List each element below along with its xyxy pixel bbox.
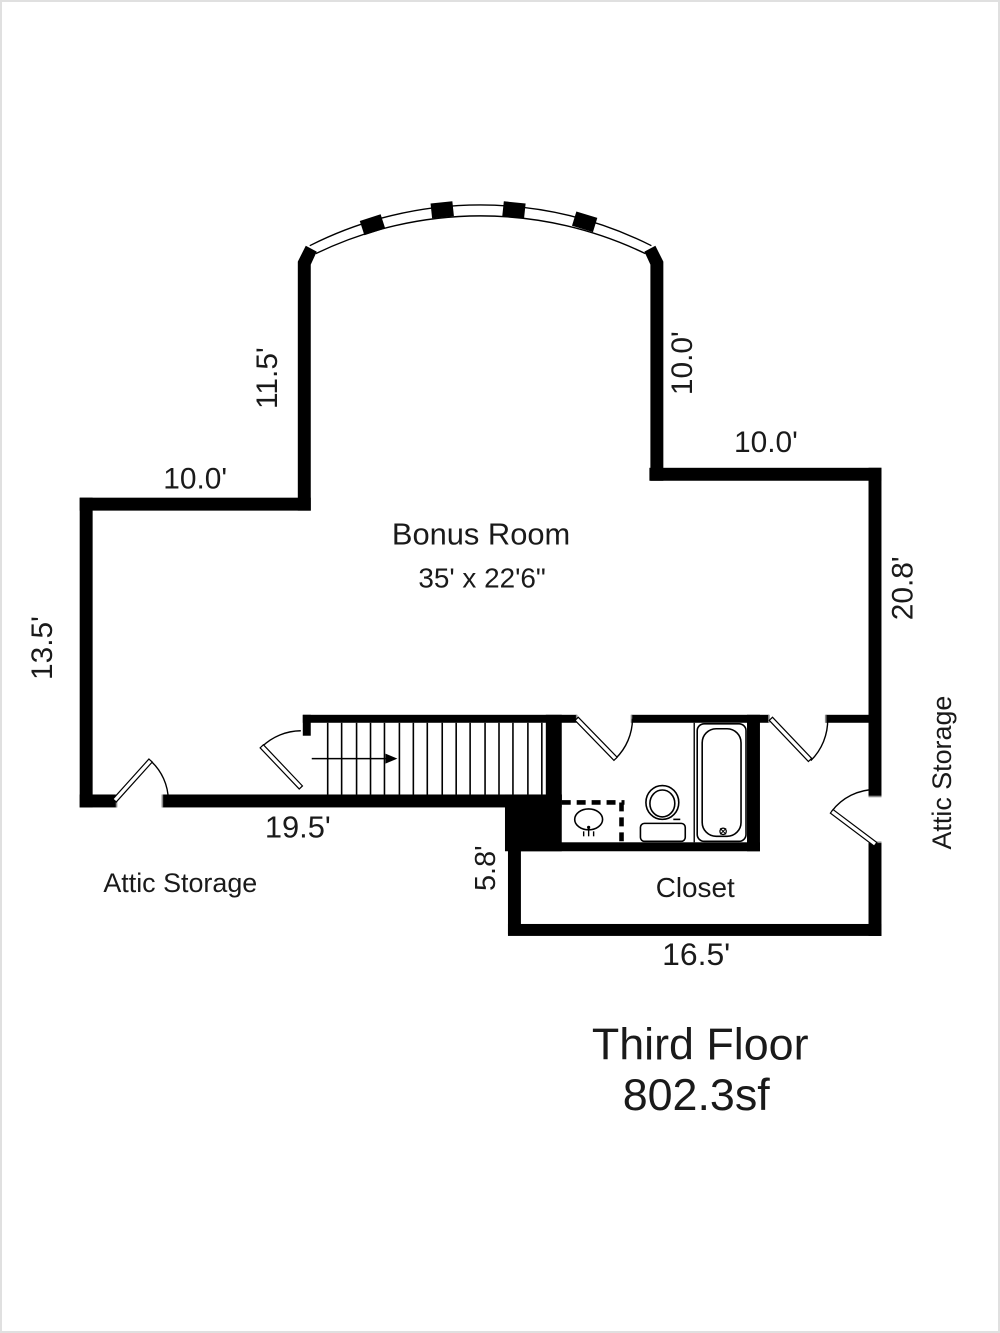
wall xyxy=(644,246,663,481)
wall xyxy=(80,794,117,807)
wall xyxy=(869,468,882,797)
dim-top-right: 10.0' xyxy=(734,426,798,459)
wall xyxy=(649,468,881,481)
sink-faucet xyxy=(587,826,590,829)
wall xyxy=(298,246,317,511)
plan-area: 802.3sf xyxy=(623,1070,771,1120)
toilet xyxy=(640,786,685,842)
dim-upper-left: 11.5' xyxy=(251,347,284,409)
label-bonus-room-size: 35' x 22'6" xyxy=(418,562,545,593)
labels: Bonus Room 35' x 22'6" Closet Attic Stor… xyxy=(26,331,957,1120)
wall xyxy=(80,498,93,808)
dim-stair-wall: 19.5' xyxy=(265,809,331,844)
wall xyxy=(869,842,882,936)
sink xyxy=(575,809,603,836)
wall xyxy=(508,924,882,936)
window-mullion xyxy=(431,201,454,218)
window-mullion xyxy=(502,201,525,218)
bathroom-fixtures xyxy=(562,723,746,845)
dim-closet-left: 5.8' xyxy=(470,845,502,891)
dim-right: 20.8' xyxy=(886,556,919,620)
door-stairs xyxy=(260,731,302,789)
label-closet: Closet xyxy=(656,872,735,903)
dim-top-left: 10.0' xyxy=(163,463,227,496)
floor-plan-svg: Bonus Room 35' x 22'6" Closet Attic Stor… xyxy=(2,2,998,1331)
wall xyxy=(508,842,760,851)
wall xyxy=(508,849,521,934)
dim-left: 13.5' xyxy=(26,616,59,680)
label-attic-storage-left: Attic Storage xyxy=(103,868,257,898)
doors xyxy=(113,715,882,846)
dim-closet-bottom: 16.5' xyxy=(662,936,730,972)
door-closet xyxy=(769,715,828,762)
window-mullion xyxy=(572,211,597,232)
dim-upper-right: 10.0' xyxy=(666,331,699,395)
label-bonus-room: Bonus Room xyxy=(392,516,570,551)
wall xyxy=(826,715,876,723)
wall xyxy=(303,715,577,723)
wall xyxy=(303,715,311,736)
door-attic-left xyxy=(113,759,168,807)
door-attic-right xyxy=(830,790,881,847)
floor-plan-page: Bonus Room 35' x 22'6" Closet Attic Stor… xyxy=(0,0,1000,1333)
wall xyxy=(80,498,311,511)
wall xyxy=(162,794,561,807)
door-bathroom xyxy=(575,715,632,761)
staircase xyxy=(312,723,542,795)
window-outer-arc xyxy=(310,205,652,246)
label-attic-storage-right: Attic Storage xyxy=(927,696,957,850)
arched-window xyxy=(310,201,652,253)
bathtub xyxy=(697,724,746,842)
wall xyxy=(747,715,760,851)
wall xyxy=(546,715,562,805)
window-mullion xyxy=(360,214,385,235)
plan-title: Third Floor xyxy=(592,1019,809,1069)
